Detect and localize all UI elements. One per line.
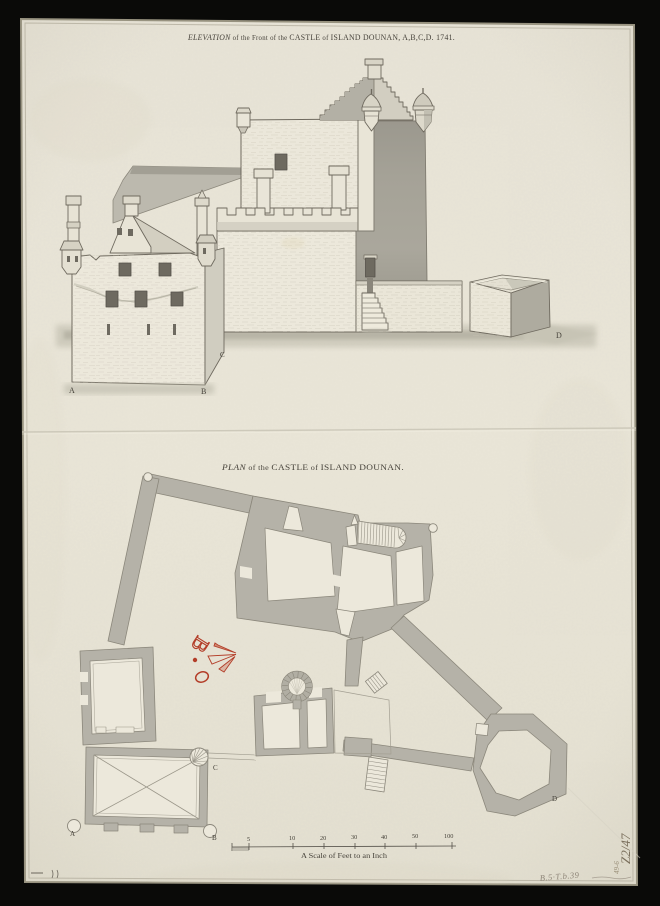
svg-text:Z2/47: Z2/47: [618, 833, 633, 864]
svg-text:B: B: [212, 834, 217, 842]
svg-text:D: D: [556, 331, 562, 340]
svg-text:B: B: [201, 387, 206, 396]
svg-text:C: C: [213, 764, 218, 772]
svg-text:A: A: [70, 830, 75, 838]
svg-text:PLAN of the CASTLE of ISLAND: PLAN of the CASTLE of ISLAND DOUNAN.: [221, 463, 404, 472]
svg-text:ELEVATION of the Front of the: ELEVATION of the Front of the CASTLE of …: [187, 33, 455, 42]
svg-text:100: 100: [444, 833, 453, 840]
svg-text:A Scale of Feet to an Inch: A Scale of Feet to an Inch: [301, 852, 388, 860]
svg-text:C: C: [220, 351, 225, 359]
svg-text:A: A: [69, 386, 75, 395]
svg-text:49-6: 49-6: [613, 861, 621, 874]
svg-text:D: D: [552, 795, 557, 803]
svg-text:10: 10: [289, 835, 295, 842]
svg-text:30: 30: [351, 834, 357, 841]
svg-text:40: 40: [381, 834, 387, 841]
svg-text:5: 5: [247, 836, 250, 843]
svg-text:20: 20: [320, 835, 326, 842]
svg-text:50: 50: [412, 833, 418, 840]
